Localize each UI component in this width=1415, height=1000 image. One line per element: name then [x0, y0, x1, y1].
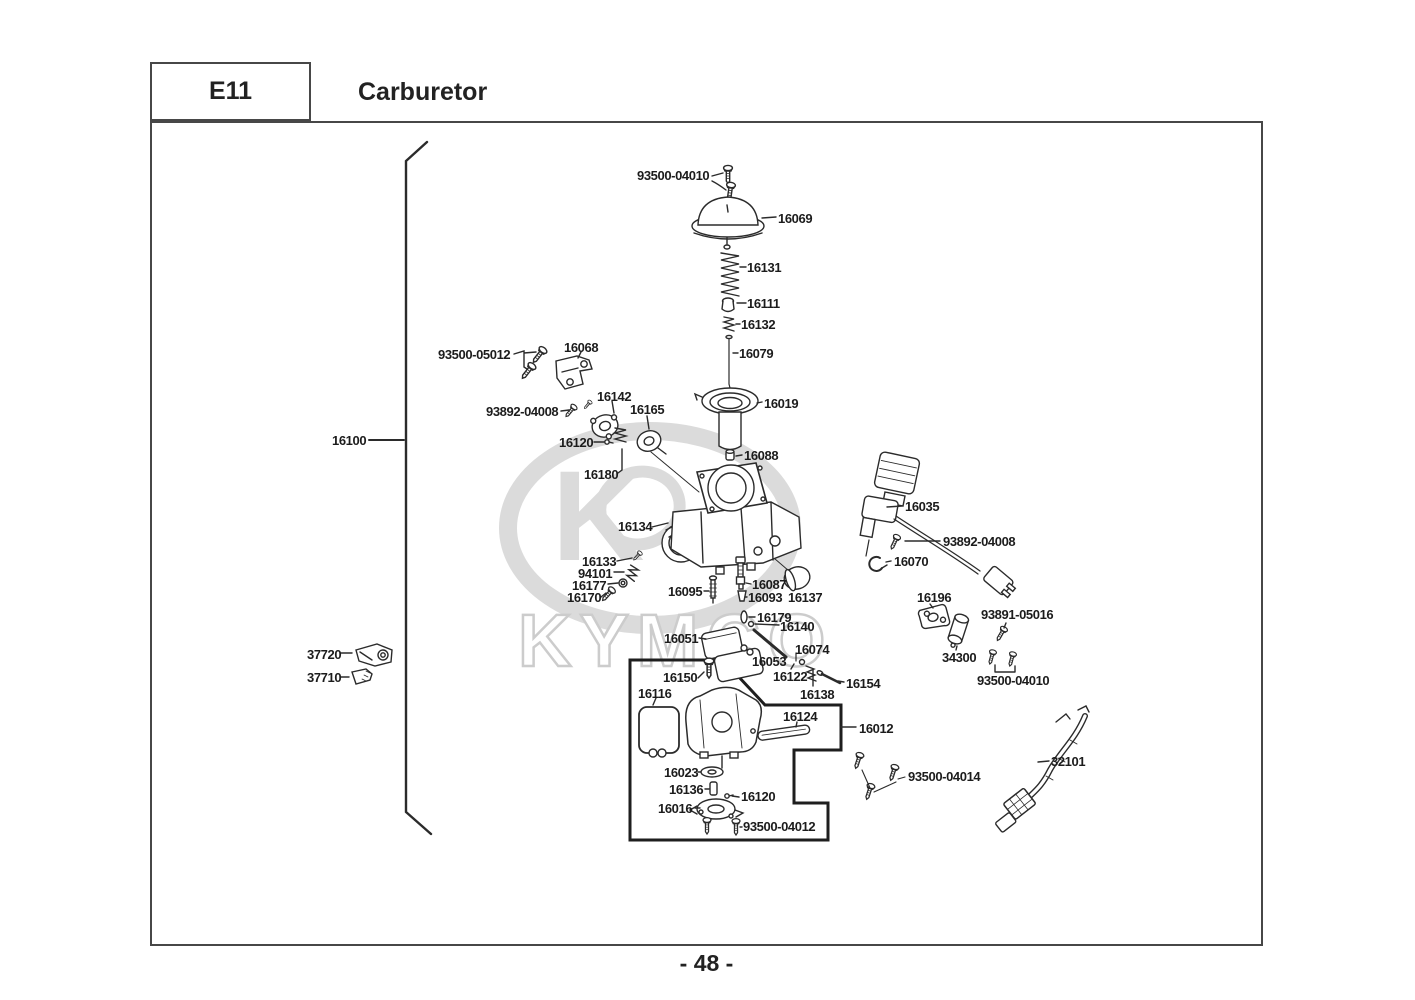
part-label-16165: 16165 [630, 402, 664, 417]
part-label-16137: 16137 [788, 590, 822, 605]
page-code-box: E11 [150, 62, 311, 121]
part-label-16122: 16122 [773, 669, 807, 684]
part-label-16088: 16088 [744, 448, 778, 463]
part-label-16116: 16116 [638, 686, 671, 701]
diagram-border [150, 121, 1263, 946]
page-code: E11 [209, 77, 252, 106]
part-label-16093: 16093 [748, 590, 782, 605]
part-label-16068: 16068 [564, 340, 598, 355]
part-label-34300: 34300 [942, 650, 976, 665]
part-label-16170: 16170 [567, 590, 601, 605]
part-label-16074: 16074 [795, 642, 829, 657]
part-label-16131: 16131 [747, 260, 781, 275]
part-label-16053: 16053 [752, 654, 786, 669]
part-label-16154: 16154 [846, 676, 880, 691]
part-label-16120: 16120 [559, 435, 593, 450]
part-label-16120: 16120 [741, 789, 775, 804]
part-label-16138: 16138 [800, 687, 834, 702]
part-label-93892-04008: 93892-04008 [943, 534, 1015, 549]
part-label-16069: 16069 [778, 211, 812, 226]
part-label-16079: 16079 [739, 346, 773, 361]
part-label-16140: 16140 [780, 619, 814, 634]
part-label-93500-05012: 93500-05012 [438, 347, 510, 362]
part-label-16012: 16012 [859, 721, 893, 736]
part-label-16111: 16111 [747, 296, 780, 311]
part-label-93500-04010: 93500-04010 [637, 168, 709, 183]
part-label-37710: 37710 [307, 670, 341, 685]
part-label-16136: 16136 [669, 782, 703, 797]
part-label-16023: 16023 [664, 765, 698, 780]
part-label-16070: 16070 [894, 554, 928, 569]
part-label-16180: 16180 [584, 467, 618, 482]
part-label-16196: 16196 [917, 590, 951, 605]
parts-catalog-page: K KYMCO [0, 0, 1415, 1000]
page-number: - 48 - [150, 950, 1263, 977]
part-label-93500-04012: 93500-04012 [743, 819, 815, 834]
page-title: Carburetor [358, 78, 487, 107]
part-label-16124: 16124 [783, 709, 817, 724]
part-label-93892-04008: 93892-04008 [486, 404, 558, 419]
part-label-37720: 37720 [307, 647, 341, 662]
part-label-93891-05016: 93891-05016 [981, 607, 1053, 622]
part-label-16150: 16150 [663, 670, 697, 685]
part-label-16142: 16142 [597, 389, 631, 404]
part-label-16019: 16019 [764, 396, 798, 411]
part-label-16100: 16100 [332, 433, 366, 448]
part-label-93500-04010: 93500-04010 [977, 673, 1049, 688]
part-label-16051: 16051 [664, 631, 698, 646]
part-label-16095: 16095 [668, 584, 702, 599]
part-label-93500-04014: 93500-04014 [908, 769, 980, 784]
part-label-16035: 16035 [905, 499, 939, 514]
part-label-16134: 16134 [618, 519, 652, 534]
part-label-16016: 16016 [658, 801, 692, 816]
part-label-32101: 32101 [1051, 754, 1085, 769]
part-label-16132: 16132 [741, 317, 775, 332]
